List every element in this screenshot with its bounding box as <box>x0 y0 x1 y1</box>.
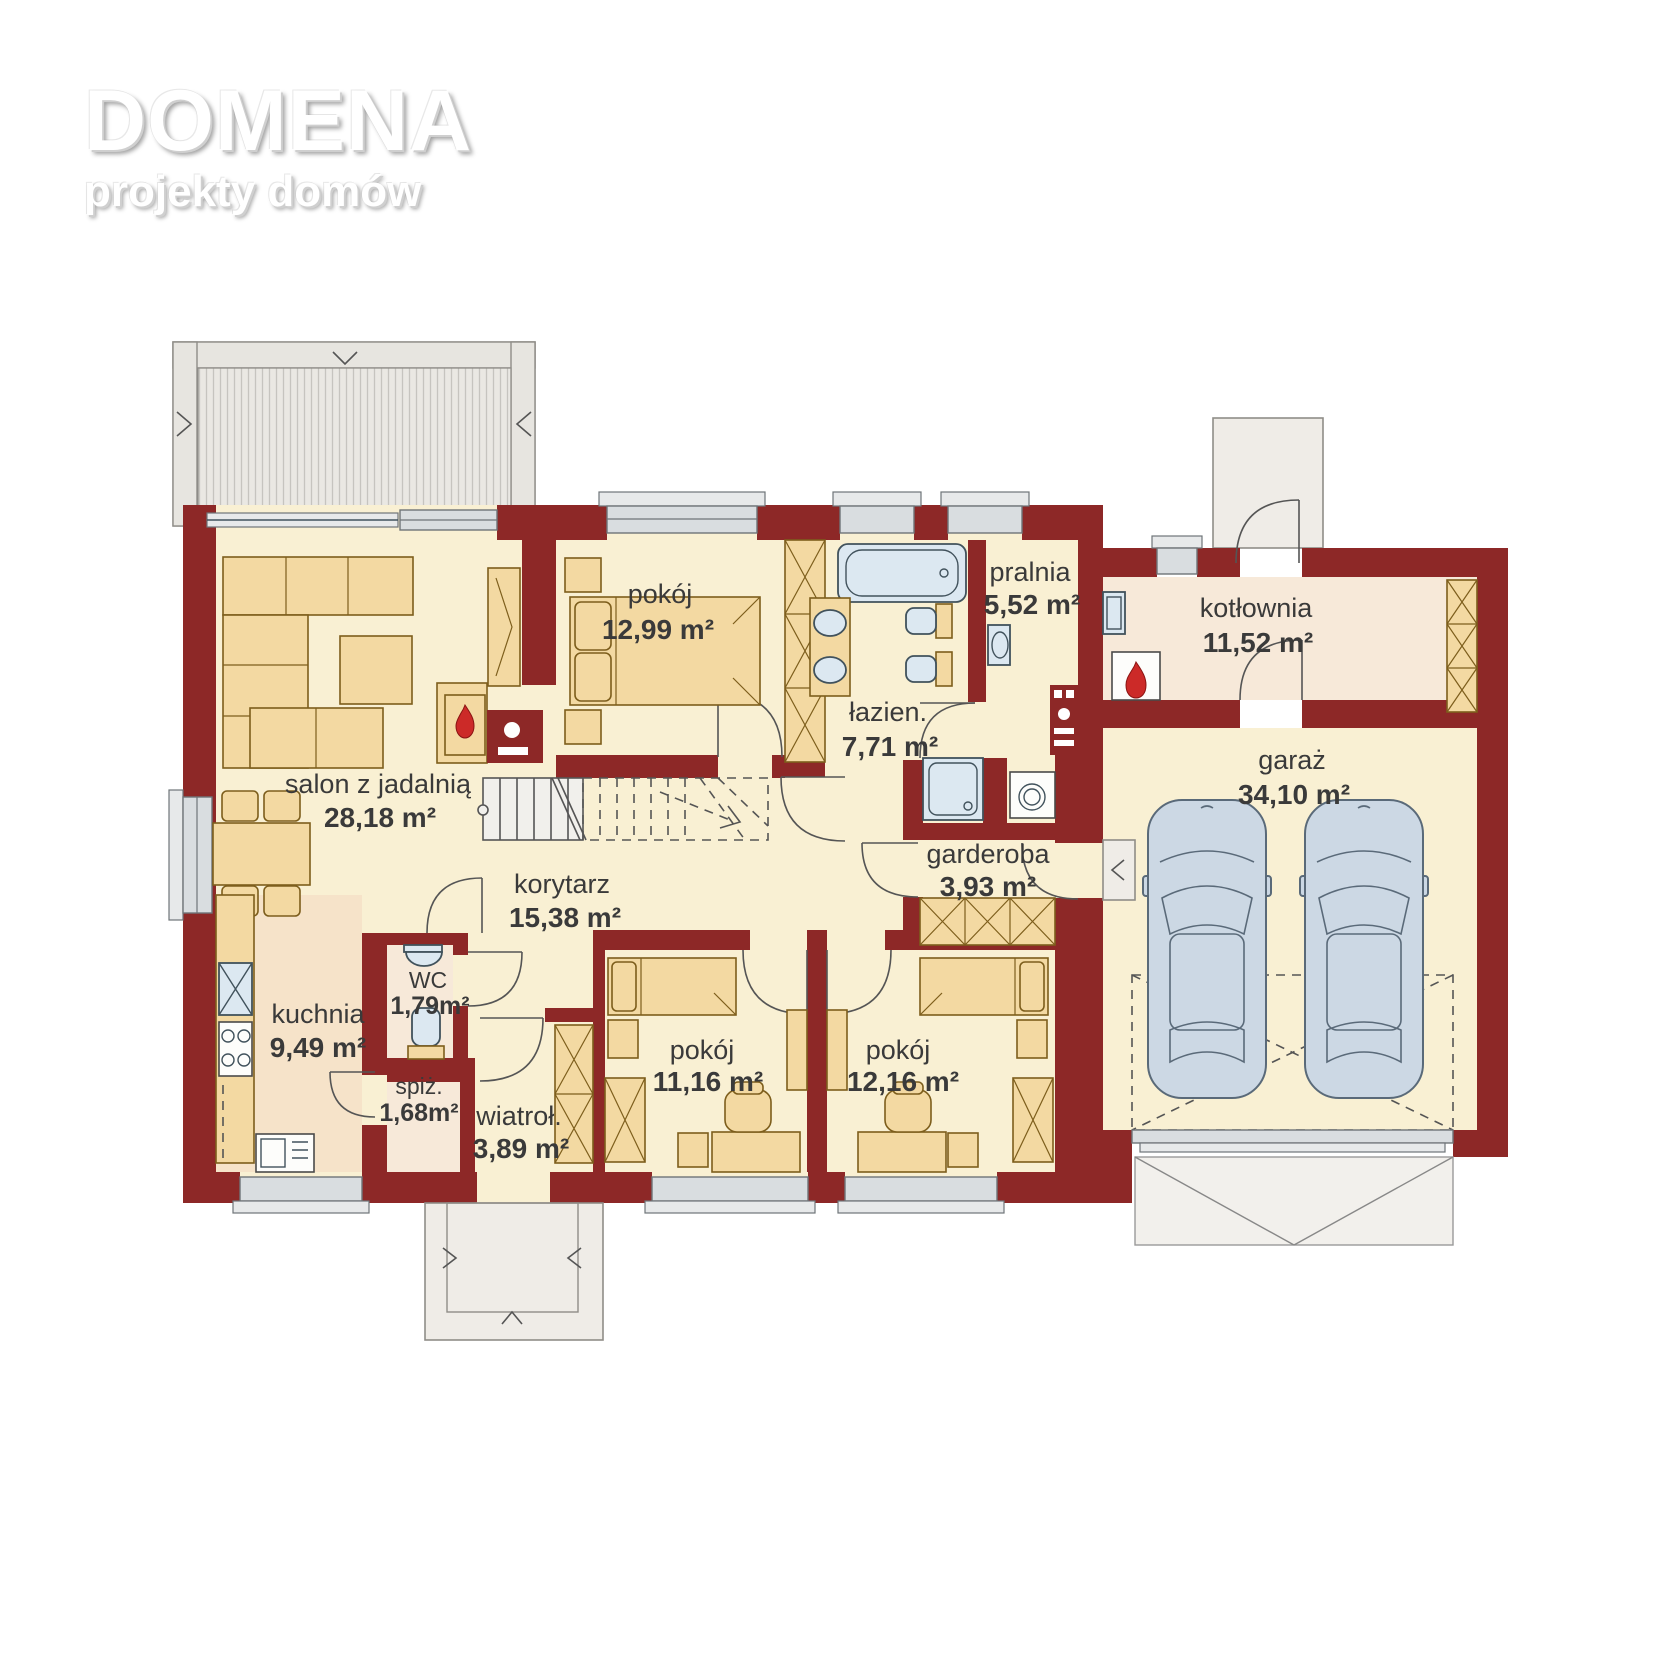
room-area-bedroom2: 11,16 m² <box>653 1066 764 1097</box>
toilet <box>906 604 952 638</box>
bedroom3-window <box>838 1177 1004 1213</box>
wall-boiler-garage <box>1103 700 1240 728</box>
bathroom-window <box>833 492 921 533</box>
entry-porch-bottom <box>425 1203 603 1340</box>
side-table <box>678 1133 708 1167</box>
boiler-room-window <box>1152 536 1202 574</box>
kitchen-sink <box>219 963 252 1015</box>
double-washbasin <box>810 598 850 696</box>
cabinet <box>1447 580 1477 712</box>
room-area-wardrobe-room: 3,93 m² <box>940 871 1037 902</box>
wall-wc-top <box>362 933 468 945</box>
room-label-corridor: korytarz <box>514 869 610 899</box>
kitchen-window <box>233 1177 369 1213</box>
garage-door <box>1132 1130 1453 1152</box>
room-area-garage: 34,10 m² <box>1238 779 1350 810</box>
wall-boiler-top <box>1103 548 1157 577</box>
room-label-bedroom2: pokój <box>670 1035 735 1065</box>
room-label-wardrobe-room: garderoba <box>926 839 1050 869</box>
room-label-salon: salon z jadalnią <box>285 769 472 799</box>
room-label-kitchen: kuchnia <box>271 999 365 1029</box>
room-label-laundry: pralnia <box>989 557 1071 587</box>
room-area-bedroom1: 12,99 m² <box>602 614 714 645</box>
room-area-vestibule: 3,89 m² <box>473 1133 570 1164</box>
room-label-garage: garaż <box>1258 745 1326 775</box>
room-area-wc: 1,79m² <box>390 992 469 1020</box>
wardrobe-room-furniture <box>920 898 1055 945</box>
desk <box>712 1132 800 1172</box>
entry-porch-top <box>1213 418 1323 548</box>
floor-plan-page: DOMENA projekty domów <box>0 0 1680 1680</box>
porch-floor <box>425 1203 603 1340</box>
room-area-salon: 28,18 m² <box>324 802 436 833</box>
room-label-vestibule: wiatroł. <box>475 1101 562 1131</box>
desk <box>858 1132 946 1172</box>
terrace-door <box>400 510 497 530</box>
wall-top <box>497 505 607 540</box>
bedroom1-window <box>599 492 765 533</box>
room-area-laundry: 5,52 m² <box>984 589 1081 620</box>
shower <box>923 758 983 820</box>
salon-side-window <box>169 790 212 920</box>
toilet <box>906 652 952 686</box>
room-label-bathroom: łazien. <box>849 697 927 727</box>
wall-bedroom1-bottom <box>556 755 718 778</box>
dishwasher <box>256 1134 314 1172</box>
nightstand <box>565 710 601 744</box>
terrace-decking <box>198 368 511 526</box>
coffee-table <box>340 636 412 704</box>
car <box>1300 800 1428 1098</box>
porch-floor <box>1213 418 1323 548</box>
driveway <box>1135 1157 1453 1245</box>
wall-bath-laundry <box>968 540 986 702</box>
wall-bottom <box>183 1172 240 1203</box>
wall-garage-bottom <box>1103 1130 1132 1157</box>
washing-machine <box>1010 772 1055 818</box>
car <box>1143 800 1271 1098</box>
utility-sink <box>1103 592 1125 634</box>
nightstand <box>608 1020 638 1058</box>
room-label-wc: WC <box>409 967 447 993</box>
room-label-bedroom3: pokój <box>866 1035 931 1065</box>
room-label-bedroom1: pokój <box>628 579 693 609</box>
wall-corridor-bedrooms <box>593 930 750 950</box>
bookshelf <box>787 1010 807 1090</box>
nightstand <box>1017 1020 1047 1058</box>
wall-bath-bottom <box>903 823 1078 840</box>
room-label-boiler: kotłownia <box>1200 593 1314 623</box>
single-bed <box>608 958 736 1015</box>
garage-door-step <box>1103 840 1135 900</box>
salon-terrace-window <box>207 513 398 527</box>
stairs-newel-post <box>478 805 488 815</box>
bedroom2-window <box>645 1177 815 1213</box>
wall-bedroom2-bedroom3 <box>807 950 827 1172</box>
wall-right <box>1477 548 1508 1157</box>
single-bed <box>920 958 1048 1015</box>
room-area-boiler: 11,52 m² <box>1203 627 1314 658</box>
terrace <box>173 342 535 526</box>
room-area-bathroom: 7,71 m² <box>842 731 939 762</box>
bookshelf <box>827 1010 847 1090</box>
wardrobe <box>605 1078 645 1162</box>
room-area-bedroom3: 12,16 m² <box>847 1066 959 1097</box>
room-area-corridor: 15,38 m² <box>509 902 621 933</box>
wall-salon-bedroom <box>522 540 556 685</box>
room-area-kitchen: 9,49 m² <box>270 1032 367 1063</box>
laundry-window <box>941 492 1029 533</box>
boiler <box>1112 652 1160 700</box>
stove <box>219 1022 252 1076</box>
room-label-pantry: spiż. <box>395 1073 442 1099</box>
chimney-flue <box>1050 685 1078 755</box>
wardrobe <box>1013 1078 1053 1162</box>
nightstand <box>565 558 601 592</box>
floor-plan: salon z jadalnią 28,18 m² pokój 12,99 m²… <box>0 0 1680 1680</box>
tv-cabinet <box>488 568 520 686</box>
bathtub <box>838 544 966 602</box>
washbasin <box>988 625 1010 665</box>
side-table <box>948 1133 978 1167</box>
room-area-pantry: 1,68m² <box>379 1099 458 1127</box>
